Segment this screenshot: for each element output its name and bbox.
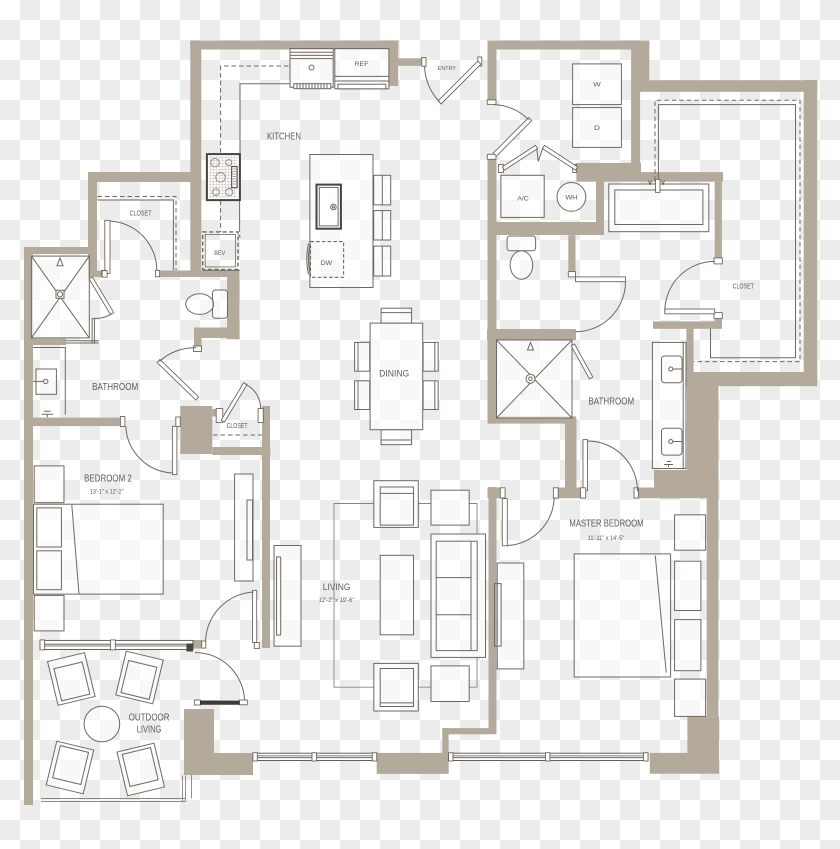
svg-text:A/C: A/C: [517, 196, 529, 202]
svg-text:CLOSET: CLOSET: [130, 211, 152, 218]
svg-text:KITCHEN: KITCHEN: [267, 131, 301, 143]
svg-text:OUTDOOR: OUTDOOR: [129, 713, 170, 724]
svg-text:DW: DW: [321, 260, 333, 267]
svg-text:LIVING: LIVING: [137, 724, 162, 735]
svg-text:MASTER BEDROOM: MASTER BEDROOM: [569, 519, 643, 530]
svg-text:W: W: [593, 83, 601, 89]
svg-text:WH: WH: [565, 196, 577, 202]
svg-text:D: D: [594, 126, 601, 132]
svg-text:12'-2" x 19'-6": 12'-2" x 19'-6": [319, 598, 355, 604]
svg-text:REF: REF: [355, 62, 369, 68]
svg-text:CLOSET: CLOSET: [733, 283, 755, 290]
svg-text:BATHROOM: BATHROOM: [588, 397, 634, 408]
svg-text:BEDROOM 2: BEDROOM 2: [84, 473, 132, 484]
svg-text:CLOSET: CLOSET: [227, 423, 249, 430]
svg-text:11'-11" x 14'-5": 11'-11" x 14'-5": [588, 536, 625, 542]
svg-text:BEV: BEV: [214, 250, 226, 257]
svg-text:LIVING: LIVING: [323, 582, 351, 592]
svg-text:13'-1" x 12'-2": 13'-1" x 12'-2": [90, 490, 124, 496]
svg-text:DINING: DINING: [379, 369, 409, 379]
svg-text:ENTRY: ENTRY: [438, 66, 456, 72]
svg-text:BATHROOM: BATHROOM: [92, 382, 138, 393]
